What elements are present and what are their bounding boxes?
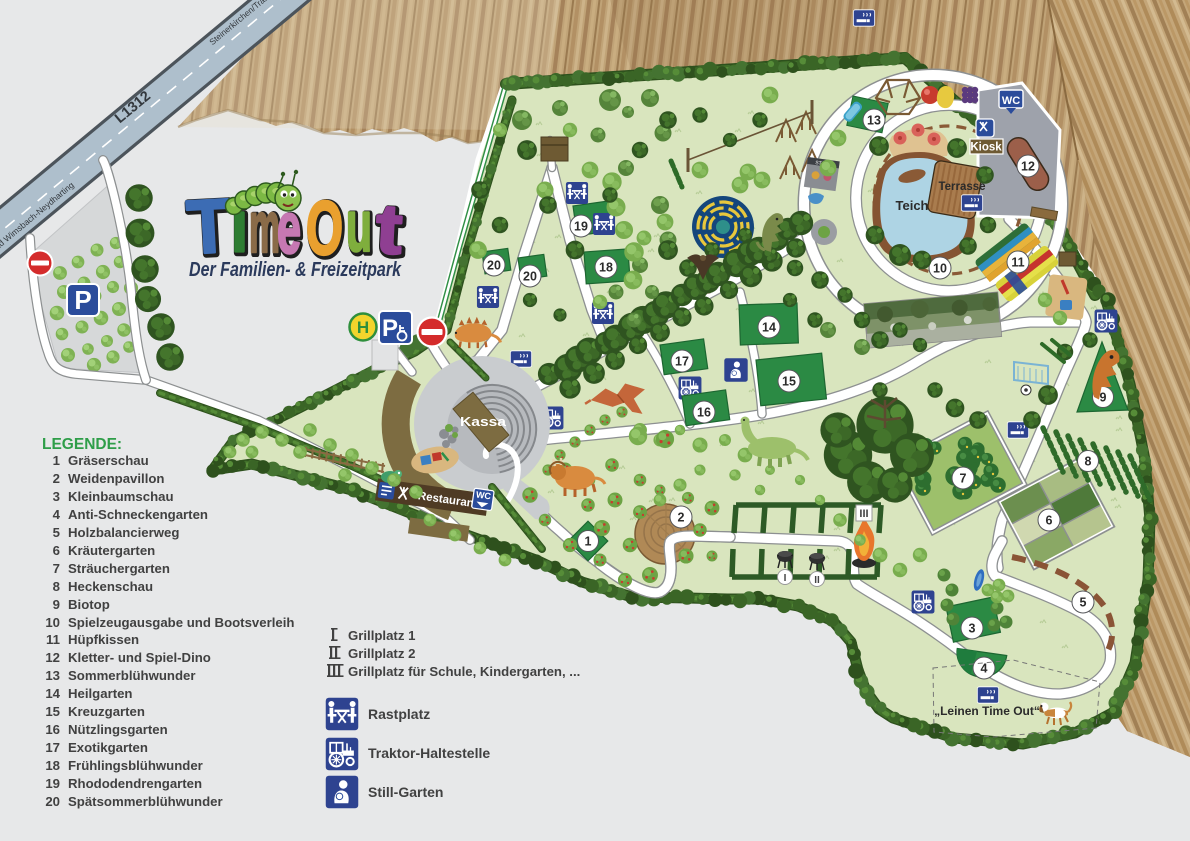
svg-text:P: P xyxy=(74,285,91,315)
svg-text:12: 12 xyxy=(45,650,60,665)
svg-text:LEGENDE:: LEGENDE: xyxy=(42,436,122,453)
svg-text:III: III xyxy=(859,508,868,520)
svg-text:Kassa: Kassa xyxy=(460,415,507,429)
svg-text:6: 6 xyxy=(1046,514,1053,528)
svg-text:H: H xyxy=(357,318,369,337)
svg-text:20: 20 xyxy=(45,794,60,809)
svg-text:19: 19 xyxy=(574,220,588,234)
svg-text:16: 16 xyxy=(697,406,711,420)
svg-text:Holzbalancierweg: Holzbalancierweg xyxy=(68,525,179,540)
svg-text:u: u xyxy=(346,187,372,267)
svg-text:3: 3 xyxy=(53,489,60,504)
svg-text:WC: WC xyxy=(1002,95,1020,107)
svg-text:I: I xyxy=(784,573,787,584)
svg-text:19: 19 xyxy=(45,776,60,791)
svg-text:„Leinen Time Out“: „Leinen Time Out“ xyxy=(934,704,1040,718)
svg-text:9: 9 xyxy=(1100,391,1107,405)
svg-text:17: 17 xyxy=(45,740,60,755)
svg-text:Nützlingsgarten: Nützlingsgarten xyxy=(68,722,168,737)
svg-text:15: 15 xyxy=(782,375,796,389)
svg-text:7: 7 xyxy=(960,472,967,486)
svg-text:Rastplatz: Rastplatz xyxy=(368,706,430,722)
svg-text:Grillplatz 2: Grillplatz 2 xyxy=(348,646,415,661)
svg-text:P: P xyxy=(382,315,398,342)
svg-text:Sommerblühwunder: Sommerblühwunder xyxy=(68,668,196,683)
svg-text:Heilgarten: Heilgarten xyxy=(68,686,133,701)
svg-text:4: 4 xyxy=(53,507,61,522)
svg-text:t: t xyxy=(374,189,404,268)
svg-text:WC: WC xyxy=(475,489,492,501)
svg-text:Traktor-Haltestelle: Traktor-Haltestelle xyxy=(368,745,490,761)
svg-text:Kiosk: Kiosk xyxy=(970,142,1002,154)
svg-text:1: 1 xyxy=(585,535,592,549)
svg-text:Rhododendrengarten: Rhododendrengarten xyxy=(68,776,202,791)
svg-text:Heckenschau: Heckenschau xyxy=(68,579,153,594)
svg-text:Grillplatz 1: Grillplatz 1 xyxy=(348,628,415,643)
svg-text:Exotikgarten: Exotikgarten xyxy=(68,740,148,755)
svg-text:2: 2 xyxy=(678,511,685,525)
svg-text:14: 14 xyxy=(45,686,60,701)
svg-text:17: 17 xyxy=(675,355,689,369)
svg-text:10: 10 xyxy=(45,615,60,630)
svg-text:11: 11 xyxy=(1011,256,1024,270)
svg-text:20: 20 xyxy=(523,270,537,284)
svg-text:Kreuzgarten: Kreuzgarten xyxy=(68,704,145,719)
svg-text:Kräutergarten: Kräutergarten xyxy=(68,543,155,558)
svg-text:20: 20 xyxy=(487,259,501,273)
svg-text:7: 7 xyxy=(53,561,60,576)
svg-text:II: II xyxy=(814,575,820,586)
svg-text:9: 9 xyxy=(53,597,60,612)
svg-text:15: 15 xyxy=(45,704,60,719)
svg-text:8: 8 xyxy=(1085,455,1092,469)
svg-text:Kletter- und Spiel-Dino: Kletter- und Spiel-Dino xyxy=(68,650,211,665)
svg-text:13: 13 xyxy=(45,668,60,683)
svg-text:Anti-Schneckengarten: Anti-Schneckengarten xyxy=(68,507,208,522)
svg-text:Still-Garten: Still-Garten xyxy=(368,784,443,800)
svg-text:18: 18 xyxy=(599,261,613,275)
svg-text:Sträuchergarten: Sträuchergarten xyxy=(68,561,170,576)
svg-text:Grillplatz für Schule, Kinderg: Grillplatz für Schule, Kindergarten, ... xyxy=(348,664,580,679)
svg-text:12: 12 xyxy=(1021,160,1035,174)
svg-text:11: 11 xyxy=(46,632,60,647)
svg-text:Frühlingsblühwunder: Frühlingsblühwunder xyxy=(68,758,203,773)
svg-text:Der Familien- & Freizeitpark: Der Familien- & Freizeitpark xyxy=(189,258,402,281)
svg-text:Kleinbaumschau: Kleinbaumschau xyxy=(68,489,174,504)
svg-text:14: 14 xyxy=(762,321,776,335)
svg-text:16: 16 xyxy=(45,722,60,737)
svg-text:1: 1 xyxy=(53,453,60,468)
svg-text:3: 3 xyxy=(969,622,976,636)
svg-text:5: 5 xyxy=(53,525,60,540)
svg-text:Weidenpavillon: Weidenpavillon xyxy=(68,471,164,486)
svg-text:Spielzeugausgabe und Bootsverl: Spielzeugausgabe und Bootsverleih xyxy=(68,615,294,630)
svg-text:10: 10 xyxy=(933,262,947,276)
svg-text:8: 8 xyxy=(53,579,60,594)
svg-text:Hüpfkissen: Hüpfkissen xyxy=(68,632,139,647)
svg-text:13: 13 xyxy=(867,114,881,128)
svg-text:Gräserschau: Gräserschau xyxy=(68,453,149,468)
svg-text:18: 18 xyxy=(45,758,60,773)
svg-text:Spätsommerblühwunder: Spätsommerblühwunder xyxy=(68,794,223,809)
svg-text:6: 6 xyxy=(53,543,60,558)
svg-text:2: 2 xyxy=(53,471,60,486)
svg-text:Biotop: Biotop xyxy=(68,597,110,612)
svg-text:5: 5 xyxy=(1080,596,1087,610)
svg-text:Terrasse: Terrasse xyxy=(938,181,985,193)
svg-text:Teich: Teich xyxy=(896,198,929,213)
